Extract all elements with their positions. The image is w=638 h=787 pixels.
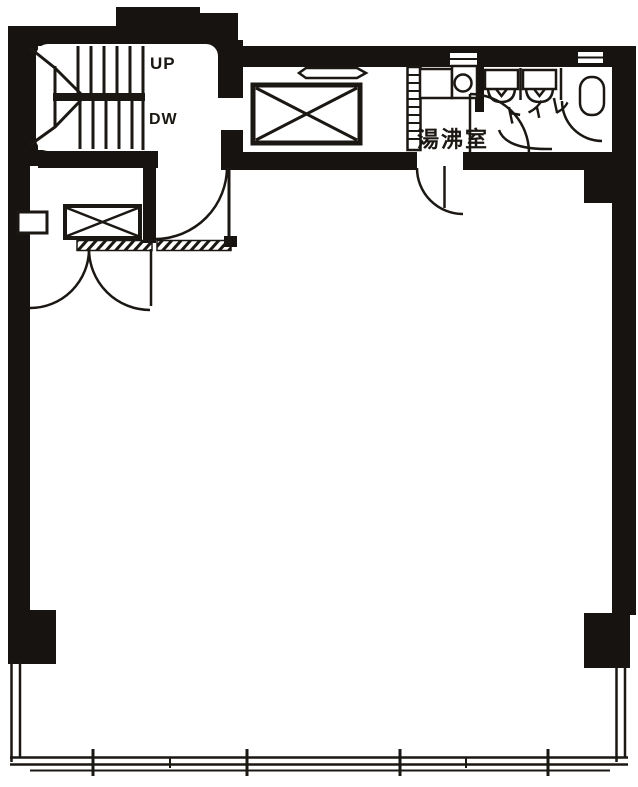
pillar-left [8,610,56,664]
pillar-toilet-step [584,168,633,203]
wall-lobby-bottom [221,152,417,170]
wall-top-right [196,46,636,67]
wall-toilet-bottom [463,152,636,170]
lintel-pill-icon [299,68,366,78]
service-shaft [18,206,140,238]
duct-box-icon [18,212,47,233]
washbasin-oval-icon [580,77,604,115]
pillar-right [584,613,630,668]
kitchenette-room-label: 湯沸室 [417,122,489,154]
door-swing-arc-icon [417,166,463,214]
wall-stair-bottom [38,150,158,168]
stairs-down-label: DW [149,111,178,129]
wall-left-upper [8,26,38,166]
wall-right [612,46,636,615]
floor-plan: UP DW 湯沸室 トイレ [0,0,638,787]
window-right [617,666,626,762]
elevator-main [253,68,366,143]
wall-stair-right-upper [216,40,243,98]
wall-vestibule-right [143,163,156,243]
wall-top-bump [116,7,200,28]
stairs-up-label: UP [150,54,176,74]
window-bottom [10,758,628,771]
window-walls [10,662,628,776]
kitchen-counter-icon [420,69,452,98]
double-door-swing-icon [30,249,151,310]
door-swing-arc-icon [156,167,227,239]
window-left [12,662,21,762]
stair-mid-landing-divider [53,93,145,101]
sink-circle-icon [455,75,472,92]
window-mullion-icon [93,749,548,776]
wall-top-stair-block [8,26,212,46]
